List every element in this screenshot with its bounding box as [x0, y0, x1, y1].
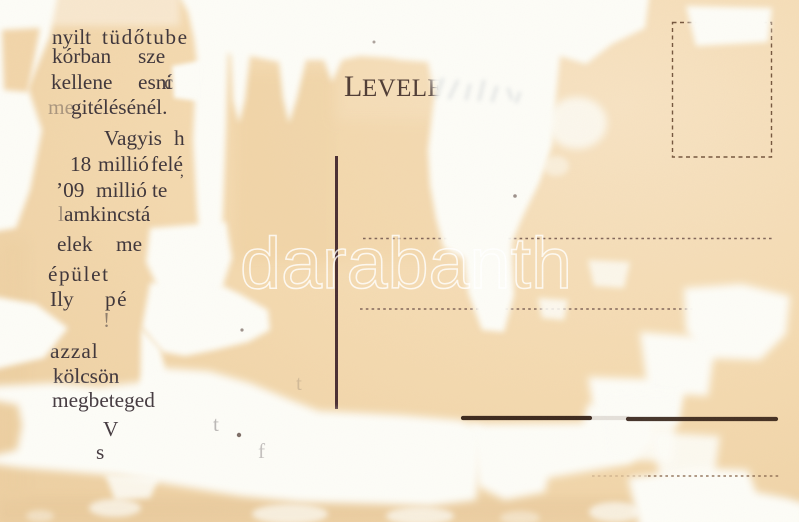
svg-text:darabanth: darabanth	[240, 224, 572, 304]
